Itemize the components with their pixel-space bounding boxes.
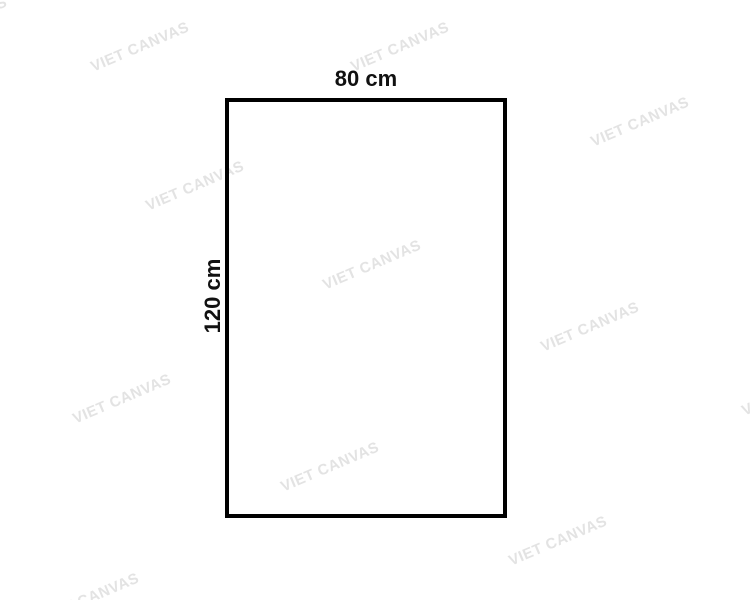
dimension-diagram: VIET CANVAS VIET CANVAS VIET CANVAS VIET… <box>0 0 750 600</box>
watermark-text: VIET CANVAS <box>0 0 10 50</box>
height-dimension-label: 120 cm <box>200 259 226 334</box>
watermark-text: VIET CANVAS <box>506 513 610 570</box>
watermark-text: VIET CANVAS <box>538 299 642 356</box>
watermark-text: VIET CANVAS <box>88 19 192 76</box>
watermark-text: VIET CANVAS <box>741 580 750 600</box>
canvas-rectangle <box>225 98 507 518</box>
width-dimension-label: 80 cm <box>225 66 507 92</box>
watermark-text: VIET CANVAS <box>70 371 174 428</box>
watermark-text: VIET CANVAS <box>38 570 142 600</box>
watermark-text: VIET CANVAS <box>739 363 750 420</box>
watermark-text: VIET CANVAS <box>588 94 692 151</box>
